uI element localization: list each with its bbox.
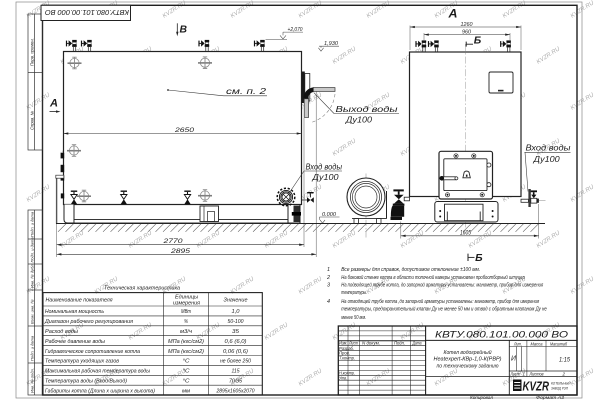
- svg-text:35: 35: [232, 329, 240, 335]
- svg-text:Т.контр.: Т.контр.: [339, 356, 355, 361]
- svg-text:ЗАВОД РЭП: ЗАВОД РЭП: [551, 386, 568, 391]
- svg-text:МВт: МВт: [181, 309, 191, 315]
- svg-text:%: %: [184, 319, 188, 325]
- svg-text:МПа (кгс/см2): МПа (кгс/см2): [168, 349, 204, 355]
- svg-text:А: А: [49, 98, 58, 110]
- svg-text:КВТУ.080.101.00.000 ВО: КВТУ.080.101.00.000 ВО: [45, 8, 129, 17]
- svg-text:0.000: 0.000: [322, 212, 336, 218]
- svg-text:см. п. 2: см. п. 2: [226, 87, 267, 96]
- svg-text:Техническая характеристика: Техническая характеристика: [104, 286, 181, 292]
- svg-text:Heatexpert-КВр-1,0-К(РВР): Heatexpert-КВр-1,0-К(РВР): [434, 357, 502, 363]
- svg-text:КОТЕЛЬНЫЙ: КОТЕЛЬНЫЙ: [551, 380, 571, 385]
- svg-text:менее 50 мм.: менее 50 мм.: [341, 315, 366, 321]
- svg-text:На отводящей трубе котла ,до з: На отводящей трубе котла ,до запорной ар…: [341, 298, 539, 305]
- svg-text:70/95: 70/95: [229, 379, 243, 385]
- svg-text:МПа (кгс/см2): МПа (кгс/см2): [168, 339, 204, 345]
- svg-text:мм: мм: [182, 388, 190, 394]
- svg-text:Рабочее давление воды: Рабочее давление воды: [45, 339, 105, 345]
- svg-text:А: А: [447, 7, 457, 21]
- svg-text:Утв.: Утв.: [339, 375, 347, 380]
- svg-text:Формат А3: Формат А3: [536, 395, 564, 400]
- svg-text:960: 960: [462, 29, 471, 35]
- svg-text:2895: 2895: [170, 248, 191, 255]
- svg-text:°С: °С: [183, 369, 191, 375]
- svg-text:Б: Б: [475, 253, 483, 264]
- svg-text:Лит.: Лит.: [513, 341, 522, 346]
- svg-text:м3/ч: м3/ч: [180, 329, 192, 335]
- svg-text:Температура воды (Вход/Выход): Температура воды (Вход/Выход): [45, 379, 127, 385]
- svg-text:1,0: 1,0: [232, 309, 241, 315]
- svg-text:1: 1: [327, 267, 330, 273]
- svg-text:50-100: 50-100: [228, 319, 245, 325]
- svg-text:Масштаб: Масштаб: [550, 341, 568, 346]
- svg-text:Диапазон рабочего регулировани: Диапазон рабочего регулирования: [44, 319, 133, 325]
- svg-text:Вход воды: Вход воды: [526, 142, 572, 152]
- svg-text:Выход воды: Выход воды: [336, 104, 399, 114]
- svg-text:0,06 (0,6): 0,06 (0,6): [223, 349, 248, 355]
- svg-text:Подп. и дата: Подп. и дата: [30, 335, 35, 361]
- svg-text:Копировал: Копировал: [470, 395, 493, 400]
- svg-text:Инв. № подл.: Инв. № подл.: [30, 368, 35, 393]
- svg-text:Вход воды: Вход воды: [306, 161, 343, 171]
- svg-text:На боковой стенке котла в обла: На боковой стенке котла в области топочн…: [341, 274, 525, 281]
- svg-text:КВТУ.080.101.00.000 ВО: КВТУ.080.101.00.000 ВО: [435, 330, 568, 340]
- svg-text:Ду100: Ду100: [311, 172, 338, 182]
- svg-text:Дата: Дата: [412, 341, 422, 346]
- svg-text:Подп. и дата: Подп. и дата: [30, 237, 35, 263]
- svg-text:2: 2: [562, 372, 566, 377]
- svg-text:Габариты котла (Длина х ширина: Габариты котла (Длина х ширина х высота): [45, 388, 155, 394]
- svg-text:Справ. №: Справ. №: [30, 111, 35, 130]
- svg-text:1:15: 1:15: [559, 357, 570, 364]
- svg-text:Инв. № дубл.: Инв. № дубл.: [30, 263, 35, 288]
- svg-text:Перв. примен.: Перв. примен.: [30, 38, 35, 66]
- svg-text:Котел водогрейный: Котел водогрейный: [444, 349, 492, 356]
- svg-text:2: 2: [326, 275, 330, 281]
- svg-text:1,930: 1,930: [324, 41, 338, 47]
- svg-text:3: 3: [327, 282, 330, 288]
- svg-text:Взам. инв. №: Взам. инв. №: [30, 299, 35, 324]
- svg-text:4: 4: [327, 299, 330, 305]
- svg-text:2895х1605х2070: 2895х1605х2070: [216, 388, 256, 394]
- svg-text:Гидравлическое сопротивление к: Гидравлическое сопротивление котла: [45, 349, 140, 355]
- svg-text:температуры.: температуры.: [341, 290, 367, 296]
- svg-text:Ду100: Ду100: [345, 115, 372, 125]
- svg-text:Масса: Масса: [531, 341, 544, 346]
- svg-text:Лист: Лист: [510, 372, 520, 377]
- svg-text:Наименование показателя: Наименование показателя: [46, 298, 113, 304]
- svg-text:Ду100: Ду100: [533, 154, 560, 164]
- svg-text:N докум.: N докум.: [362, 341, 380, 346]
- svg-text:2650: 2650: [174, 127, 195, 134]
- svg-text:Листов: Листов: [529, 372, 544, 377]
- svg-text:Расход воды: Расход воды: [45, 329, 78, 335]
- svg-text:измерения: измерения: [173, 300, 200, 306]
- svg-text:Значение: Значение: [224, 298, 248, 304]
- svg-text:На подводящей трубе котла, д: На подводящей трубе котла, до запорной а…: [341, 281, 543, 288]
- svg-text:1260: 1260: [461, 22, 473, 28]
- svg-text:°С: °С: [183, 359, 191, 365]
- svg-text:Б: Б: [474, 35, 482, 46]
- svg-text:Максимальная рабочая температу: Максимальная рабочая температура воды: [45, 369, 150, 375]
- svg-text:Все размеры для справок, допус: Все размеры для справок, допустимое откл…: [341, 267, 480, 273]
- svg-text:2770: 2770: [162, 238, 183, 245]
- svg-text:0,6 (6,0): 0,6 (6,0): [225, 339, 247, 345]
- svg-text:по техническому заданию: по техническому заданию: [437, 363, 499, 369]
- svg-text:KVZR: KVZR: [523, 379, 550, 393]
- svg-text:Температура уходящих газов: Температура уходящих газов: [45, 359, 119, 365]
- svg-text:115: 115: [232, 369, 241, 375]
- svg-text:В: В: [180, 24, 188, 36]
- svg-text:Номинальная мощность: Номинальная мощность: [45, 309, 104, 315]
- svg-text:не более 250: не более 250: [220, 359, 252, 365]
- svg-text:Подп.: Подп.: [394, 341, 405, 346]
- svg-text:+2,070: +2,070: [288, 27, 303, 33]
- svg-text:температуры, предохранительный: температуры, предохранительный клапан Ду…: [341, 305, 547, 312]
- svg-text:Подп. и дата: Подп. и дата: [30, 211, 35, 237]
- svg-text:°С: °С: [183, 379, 191, 385]
- svg-text:1605: 1605: [460, 230, 472, 236]
